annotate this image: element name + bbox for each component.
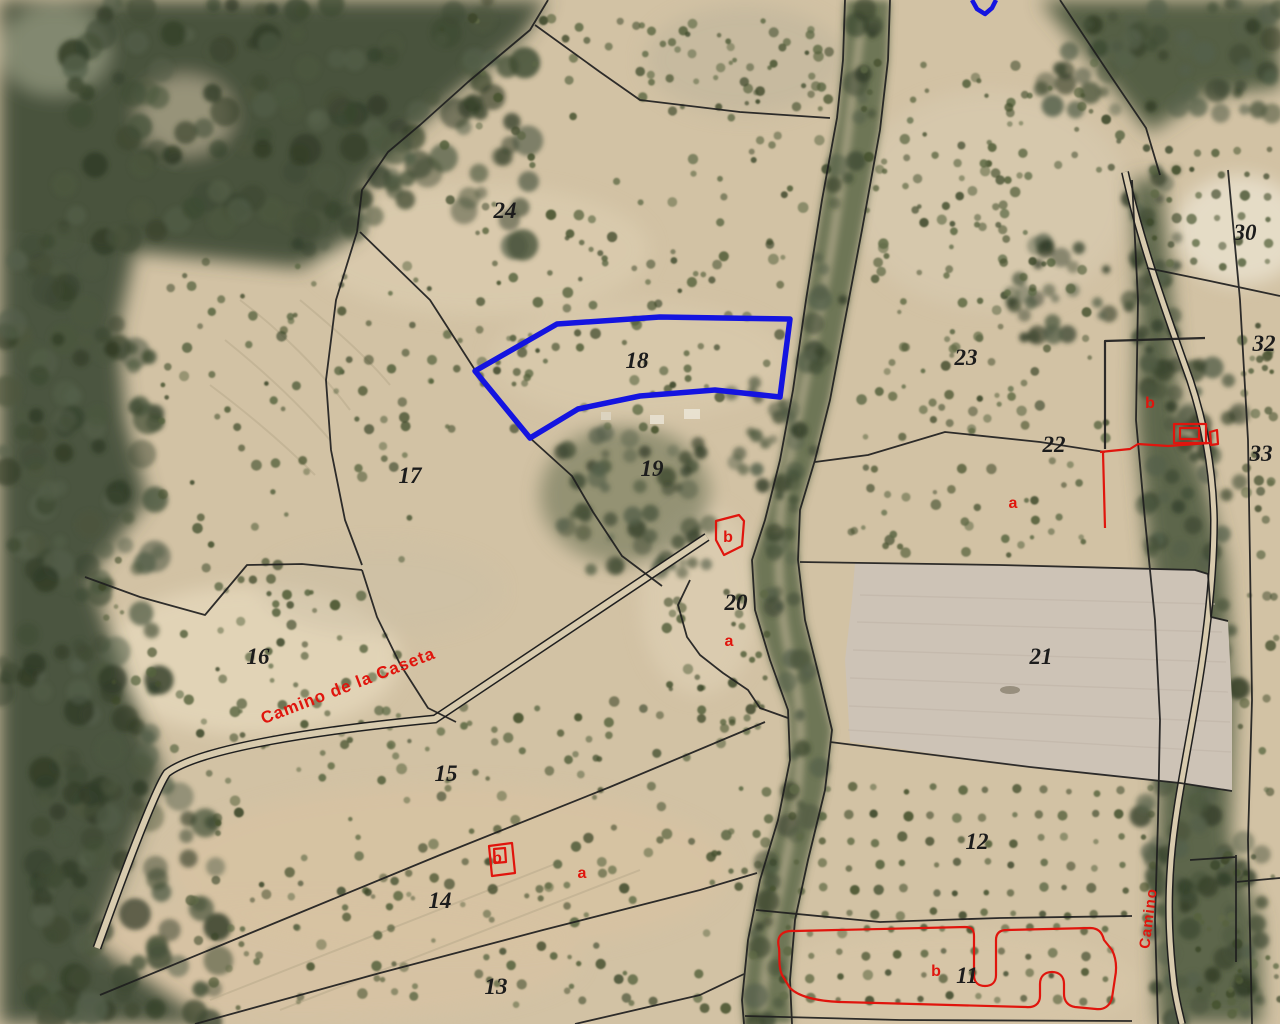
parcel-label-11: 11 — [956, 963, 978, 988]
parcel-label-22: 22 — [1042, 432, 1066, 457]
parcel-label-32: 32 — [1252, 331, 1276, 356]
subparcel-letter-b: b — [931, 963, 941, 980]
parcel-label-14: 14 — [429, 888, 452, 913]
parcel-label-19: 19 — [641, 456, 665, 481]
parcel-label-12: 12 — [966, 829, 989, 854]
parcel-label-16: 16 — [247, 644, 271, 669]
parcel-label-13: 13 — [485, 974, 508, 999]
parcel-label-30: 30 — [1233, 220, 1258, 245]
parcel-label-21: 21 — [1029, 644, 1053, 669]
subparcel-letter-b: b — [492, 850, 502, 867]
parcel-label-24: 24 — [493, 198, 517, 223]
subparcel-letter-b: b — [723, 529, 733, 546]
subparcel-letter-a: a — [1009, 495, 1018, 512]
parcel-label-18: 18 — [626, 348, 650, 373]
cadastral-map-viewport[interactable]: Camino de la CasetaCamino 24181719162023… — [0, 0, 1280, 1024]
parcel-label-20: 20 — [724, 590, 749, 615]
parcel-label-17: 17 — [399, 463, 424, 488]
parcel-label-23: 23 — [954, 345, 978, 370]
subparcel-letter-b: b — [1145, 395, 1155, 412]
cadastral-map[interactable]: Camino de la CasetaCamino 24181719162023… — [0, 0, 1280, 1024]
parcel-label-15: 15 — [435, 761, 458, 786]
subparcel-letter-a: a — [578, 865, 587, 882]
parcel-label-33: 33 — [1249, 441, 1273, 466]
subparcel-letter-a: a — [725, 633, 734, 650]
